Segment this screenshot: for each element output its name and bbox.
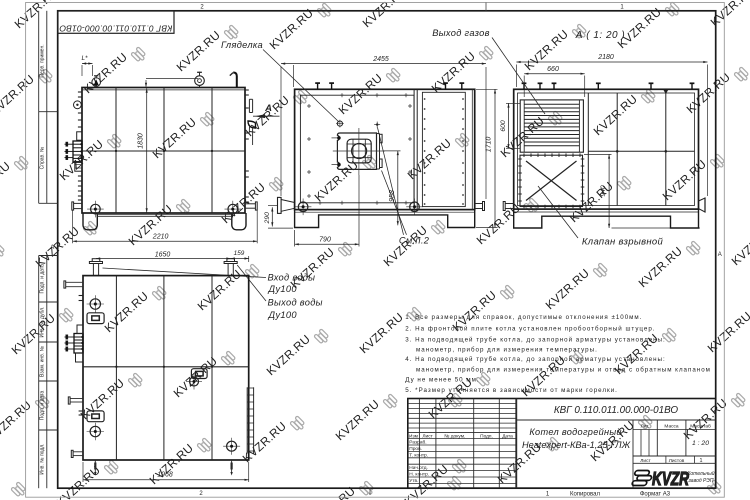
svg-text:4. На подводящей трубе котла,: 4. На подводящей трубе котла, до запорно…: [405, 356, 665, 363]
svg-text:А: А: [50, 245, 54, 251]
svg-text:Т. контр.: Т. контр.: [409, 452, 428, 458]
svg-text:Нач.отд.: Нач.отд.: [409, 465, 428, 471]
svg-text:3. На подводящей трубе котла,: 3. На подводящей трубе котла, до запорно…: [405, 337, 665, 344]
svg-text:Н. контр.: Н. контр.: [409, 472, 429, 478]
svg-text:790: 790: [319, 236, 331, 243]
svg-text:L*: L*: [81, 55, 88, 62]
svg-text:Выход газов: Выход газов: [432, 28, 489, 38]
svg-text:Масштаб: Масштаб: [690, 424, 711, 430]
svg-text:Утв.: Утв.: [409, 478, 418, 484]
svg-text:Взам. инв. №: Взам. инв. №: [40, 346, 46, 377]
svg-text:290: 290: [264, 212, 271, 225]
svg-text:Подп.: Подп.: [480, 433, 493, 439]
svg-text:Клапан взрывной: Клапан взрывной: [582, 236, 664, 247]
svg-text:КВГ 0.110.011.00.000-01ВО: КВГ 0.110.011.00.000-01ВО: [554, 405, 679, 416]
svg-text:600: 600: [500, 120, 507, 132]
svg-text:1650: 1650: [155, 251, 171, 258]
svg-text:№ докум.: № докум.: [444, 433, 465, 439]
svg-text:Выход воды: Выход воды: [268, 297, 323, 307]
svg-text:Перв. примен.: Перв. примен.: [40, 44, 46, 77]
svg-text:1. Все размеры для справок, до: 1. Все размеры для справок, допустимые о…: [405, 314, 642, 321]
svg-text:660: 660: [547, 66, 559, 73]
svg-text:См.п.2: См.п.2: [399, 235, 430, 245]
svg-text:Пров.: Пров.: [409, 446, 422, 452]
svg-text:Лист: Лист: [422, 433, 433, 439]
svg-text:завод РЭП: завод РЭП: [688, 478, 714, 484]
svg-text:Ду не менее 50 мм.: Ду не менее 50 мм.: [405, 376, 479, 383]
svg-text:159: 159: [234, 250, 245, 257]
svg-text:Ду100: Ду100: [268, 310, 298, 320]
svg-text:2210: 2210: [152, 234, 169, 241]
svg-text:Дата: Дата: [502, 433, 513, 439]
svg-text:А: А: [264, 103, 272, 114]
svg-text:2455: 2455: [372, 56, 389, 63]
svg-text:манометр, прибор для измерения: манометр, прибор для измерения температу…: [416, 367, 711, 374]
svg-text:Подп. и дата: Подп. и дата: [40, 264, 46, 294]
svg-text:Вход воды: Вход воды: [268, 272, 316, 282]
svg-text:Инв. № дубл.: Инв. № дубл.: [40, 307, 46, 338]
svg-text:Разраб.: Разраб.: [409, 440, 426, 446]
svg-text:5. *Размер уточняется в зависи: 5. *Размер уточняется в зависимости от м…: [405, 387, 618, 394]
svg-text:1710: 1710: [486, 137, 493, 153]
svg-text:Масса: Масса: [664, 424, 679, 430]
svg-text:2180: 2180: [597, 54, 614, 61]
svg-text:манометр, прибор для измерения: манометр, прибор для измерения температу…: [416, 347, 598, 354]
svg-text:1 : 20: 1 : 20: [692, 440, 709, 447]
svg-text:А ( 1: 20 ): А ( 1: 20 ): [575, 30, 625, 41]
svg-text:А: А: [718, 252, 722, 258]
svg-text:KVZR: KVZR: [652, 469, 689, 489]
svg-text:Гляделка: Гляделка: [221, 40, 263, 50]
svg-text:КВГ 0.110.011.00.000-01ВО: КВГ 0.110.011.00.000-01ВО: [59, 24, 172, 34]
svg-text:940: 940: [600, 185, 607, 197]
svg-text:Справ. №: Справ. №: [40, 147, 46, 170]
svg-text:2. На фронтовой плите котла ус: 2. На фронтовой плите котла установлен п…: [405, 326, 655, 333]
svg-text:Инв. № подл.: Инв. № подл.: [40, 443, 46, 474]
svg-text:Heatexpert-КВа-1,25-ГЛЖ: Heatexpert-КВа-1,25-ГЛЖ: [522, 440, 631, 450]
svg-text:Ду100: Ду100: [268, 284, 298, 294]
svg-text:Формат А3: Формат А3: [640, 492, 671, 498]
svg-text:1830: 1830: [138, 133, 145, 149]
svg-text:Лит.: Лит.: [641, 424, 650, 430]
svg-text:Изм: Изм: [409, 433, 418, 439]
svg-text:Котельный: Котельный: [687, 470, 714, 477]
svg-text:Котел водогрейный: Котел водогрейный: [529, 427, 622, 437]
svg-text:Подп. и дата: Подп. и дата: [40, 391, 46, 421]
svg-text:Копировал: Копировал: [570, 491, 601, 497]
svg-text:1968: 1968: [157, 472, 173, 479]
